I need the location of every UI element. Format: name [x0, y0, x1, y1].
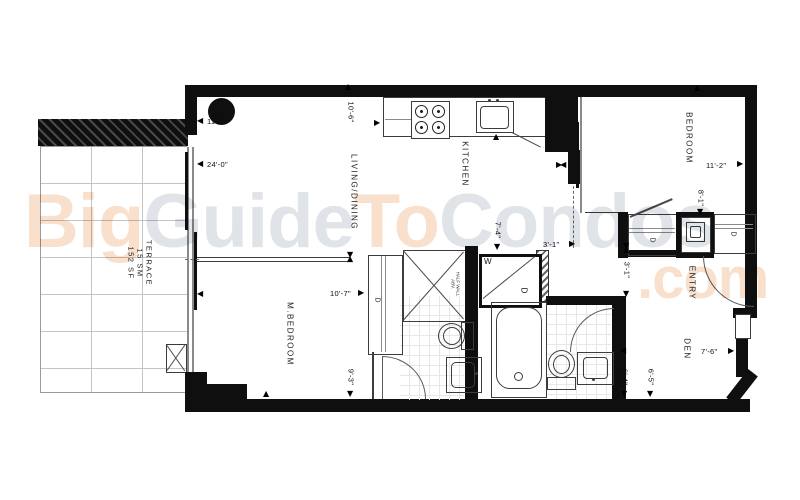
faucet-dot-2 — [496, 99, 499, 102]
half-wall-annotation: HALF WALL ABV. — [450, 272, 461, 297]
dim-den-width: 7'-6" — [701, 347, 717, 356]
wall-bottomleft-block-2 — [185, 384, 247, 401]
faucet-dot-1 — [488, 99, 491, 102]
dim-arrow-left-2: ◀ — [197, 160, 203, 168]
dim-hall-depth: 7'-4" — [494, 222, 503, 238]
ensuite-sink-basin — [451, 362, 475, 388]
stove-burner-1 — [415, 105, 428, 118]
balcony-slider-panel-1 — [185, 152, 188, 230]
den-pillar-box — [735, 314, 751, 339]
bedroom-slider-panel — [576, 122, 579, 188]
bathtub-drain — [514, 372, 523, 381]
half-wall-bowtie: ▶◀ — [346, 252, 354, 260]
dim-master-depth: 9'-3" — [347, 369, 356, 385]
terrace-floor-grid — [40, 146, 187, 393]
entry-door-arc — [703, 256, 754, 307]
wall-bath-top — [546, 296, 614, 305]
dim-arrow-down-closet: ▼ — [697, 208, 703, 216]
stove-burner-3 — [415, 121, 428, 134]
dim-closet-width: 3'-1" — [623, 262, 632, 278]
master-closet-d-label: D — [374, 297, 381, 302]
entry-closet-d-label: D — [730, 231, 737, 236]
dim-terrace-length: 24'-0" — [207, 160, 228, 169]
bedroom-closet-shelf-1 — [629, 228, 675, 229]
wall-left-upper — [185, 85, 197, 135]
mainbath-sink-basin — [583, 357, 608, 379]
dim-arrow-left-3: ◀ — [197, 290, 203, 298]
dim-arrow-down-den: ▼ — [647, 390, 653, 398]
master-bedroom-label: M.BEDROOM — [286, 302, 295, 366]
master-door-leaf — [372, 352, 374, 399]
counter-end-marker: ▶ — [374, 119, 380, 127]
terrace-name: TERRACE — [145, 240, 154, 286]
ensuite-toilet-seat — [443, 327, 461, 345]
dim-arrow-down-closetw: ▼ — [623, 290, 629, 298]
mainbath-toilet-tank — [547, 377, 576, 390]
half-wall-text-1: HALF WALL — [455, 272, 460, 297]
bedroom-closet — [628, 214, 678, 256]
dim-arrow-right-den: ▶ — [728, 347, 734, 355]
dryer-label: D — [519, 288, 528, 294]
bedroom-slider-track — [580, 97, 582, 213]
dim-bath-depth: 6'-4" — [621, 369, 630, 385]
dim-arrow-right-hall: ▶ — [569, 240, 575, 248]
entry-closet-shelf-2 — [715, 228, 753, 229]
dim-hall-width: 3'-1" — [543, 240, 559, 249]
washer-label: W — [484, 257, 492, 266]
den-label: DEN — [683, 338, 692, 359]
closet-width-bowtie: ▶◀ — [622, 243, 630, 251]
entry-closet-shelf-1 — [715, 224, 753, 225]
dim-terrace-width: 11'-7" — [207, 117, 227, 126]
master-closet-slider-2 — [385, 256, 386, 352]
dim-arrow-down-master: ▼ — [347, 390, 353, 398]
dim-bedroom-closet: 8'-1" — [697, 190, 706, 206]
bedroom-bottom-line — [585, 212, 620, 213]
counter-marker-up: ▲ — [493, 133, 499, 141]
mainbath-toilet-seat — [553, 355, 570, 374]
wall-right-upper — [745, 85, 757, 217]
stove-burner-4 — [432, 121, 445, 134]
terrace-top-wall — [38, 119, 188, 146]
balcony-slider-panel-2 — [194, 232, 197, 310]
terrace-area-sm: 15 SM — [136, 248, 145, 277]
living-dining-label: LIVING/DINING — [350, 154, 359, 230]
entry-label: ENTRY — [688, 266, 697, 300]
half-wall-text-2: ABV. — [450, 279, 455, 289]
kitchen-column-block — [545, 95, 578, 152]
half-wall-dashed-end — [185, 259, 199, 260]
dim-arrow-left-1: ◀ — [197, 117, 203, 125]
kitchen-counter-line — [385, 119, 411, 120]
dim-arrow-right-bedroom: ▶ — [737, 160, 743, 168]
dim-kitchen-depth: 10'-6" — [347, 102, 356, 123]
dim-arrow-up-kitchen: ▲ — [345, 83, 351, 91]
bedroom-top-marker: ▲ — [694, 84, 700, 92]
bedroom-closet-d-label: D — [649, 237, 656, 242]
dim-arrow-left-den: ◀ — [620, 347, 626, 355]
half-wall-line-2 — [197, 261, 350, 262]
bedroom-closet-shelf-2 — [629, 232, 675, 233]
stove-burner-2 — [432, 105, 445, 118]
wall-top — [185, 85, 757, 97]
master-closet-slider-1 — [381, 256, 382, 352]
dim-den-depth: 6'-5" — [647, 369, 656, 385]
floorplan-image: TERRACE 15 SM 152 SF KITCHEN LIVING/DINI… — [0, 0, 800, 500]
kitchen-sink-basin — [480, 106, 509, 129]
dim-arrow-down-bath: ▼ — [621, 390, 627, 398]
stub-wall-bowtie: ▶◀ — [556, 161, 564, 169]
kitchen-counter — [383, 97, 547, 137]
dim-master-width: 10'-7" — [330, 289, 351, 298]
bedroom-label: BEDROOM — [685, 112, 694, 164]
mainbath-faucet-dot — [592, 378, 595, 381]
bottom-wall-marker: ▲ — [263, 390, 269, 398]
ensuite-faucet-dot — [475, 372, 478, 375]
terrace-area-sf: 152 SF — [127, 246, 136, 279]
kitchen-label: KITCHEN — [461, 141, 470, 187]
dim-arrow-right-master: ▶ — [358, 289, 364, 297]
half-wall-line-1 — [197, 257, 350, 258]
dim-arrow-down-hall: ▼ — [494, 243, 500, 251]
utility-appliance-door — [690, 226, 701, 238]
terrace-label: TERRACE 15 SM 152 SF — [127, 240, 154, 286]
dim-bedroom-width: 11'-2" — [706, 161, 726, 170]
